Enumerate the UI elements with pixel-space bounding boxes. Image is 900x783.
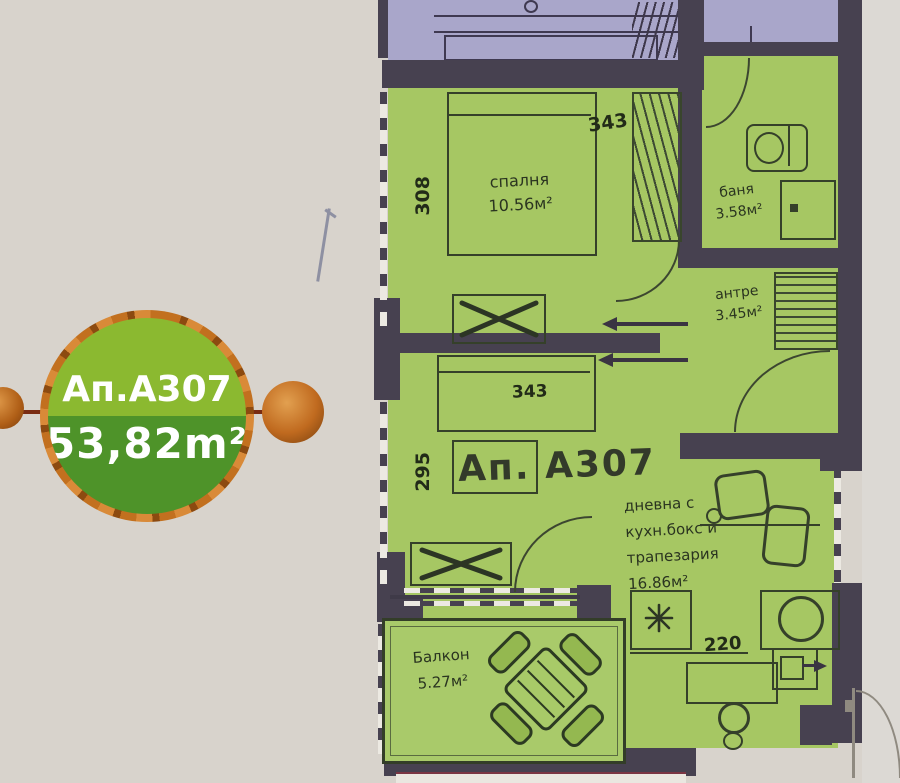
wall-top-edge xyxy=(378,0,388,58)
badge-right-ball xyxy=(262,381,324,443)
stove-burner-icon xyxy=(644,603,674,633)
oven-arrow-head xyxy=(814,660,827,672)
window-living-left xyxy=(380,402,387,590)
sofa-back-line xyxy=(439,371,590,373)
wall-kitchen-corner xyxy=(800,705,832,745)
neighbor-bed-outline xyxy=(444,35,658,61)
floor-plan: спалня 10.56м² 343 308 баня 3.58м² антре… xyxy=(374,0,862,783)
window-balcony-top-2 xyxy=(390,601,580,606)
neighbor-knob xyxy=(524,0,538,13)
stove xyxy=(630,590,692,650)
toilet-bowl xyxy=(754,132,784,164)
outside-door-handle xyxy=(845,700,855,712)
window-bedroom-left xyxy=(380,92,387,330)
desk-chair-2 xyxy=(761,504,811,568)
balcony-label: Балкон 5.27м² xyxy=(401,645,484,692)
unit-label-large: Ап. А307 xyxy=(457,442,688,490)
neighbor-room-line xyxy=(750,26,752,42)
kitchen-stool-large xyxy=(718,702,750,734)
dim-living-height: 295 xyxy=(412,452,434,492)
desk-knob xyxy=(706,508,722,524)
balcony-table-set xyxy=(480,626,620,752)
badge-disc: Ап.А307 53,82m² xyxy=(48,318,246,514)
shower-drain xyxy=(790,204,798,212)
balcony-door-sill xyxy=(390,595,580,599)
toilet-tank-line xyxy=(788,126,790,166)
entry-arrow-1-head xyxy=(602,317,617,331)
bed-pillow-line xyxy=(449,114,591,116)
window-living-right xyxy=(834,466,841,583)
wall-under-neighbor-room xyxy=(702,42,838,56)
bedside-table xyxy=(452,294,546,344)
folding-table xyxy=(410,542,512,586)
dim-bedroom-height: 308 xyxy=(412,176,434,216)
neighbor-room-top-right xyxy=(702,0,838,42)
wardrobe-hall xyxy=(774,272,838,350)
wall-right-outer xyxy=(838,0,862,466)
badge-unit-label: Ап.А307 xyxy=(48,318,246,413)
wardrobe-bedroom xyxy=(632,92,682,242)
wall-top-divider xyxy=(382,60,704,88)
wall-kitchen-top xyxy=(680,433,838,459)
lower-balcony-strip xyxy=(396,772,686,783)
pen-mark xyxy=(316,208,331,282)
wall-stair-divider xyxy=(678,0,704,90)
balcony-name: Балкон xyxy=(401,645,482,667)
badge-area-label: 53,82m² xyxy=(48,413,246,514)
wall-bath-bottom xyxy=(690,248,838,268)
sink-basin xyxy=(778,596,824,642)
kitchen-stool-small xyxy=(723,732,743,750)
dim-kitchen-width: 220 xyxy=(703,633,742,657)
kitchen-island xyxy=(686,662,778,704)
oven-inner xyxy=(780,656,804,680)
entry-arrow-1-line xyxy=(616,322,688,326)
dim-sofa-width: 343 xyxy=(512,381,548,402)
area-badge: Ап.А307 53,82m² xyxy=(40,310,254,522)
stair-hatch xyxy=(632,2,678,58)
wall-right-step xyxy=(820,459,862,471)
shower-tray xyxy=(780,180,836,240)
background-right-strip xyxy=(862,0,900,783)
wall-left-stub xyxy=(374,298,400,400)
entry-arrow-2-head xyxy=(598,353,613,367)
floor-plan-photo: Ап.А307 53,82m² xyxy=(0,0,900,783)
entry-arrow-2-line xyxy=(612,358,688,362)
desk-edge-line xyxy=(700,524,820,526)
badge-left-ball xyxy=(0,387,24,429)
bedroom-label: спалня 10.56м² xyxy=(449,168,591,216)
